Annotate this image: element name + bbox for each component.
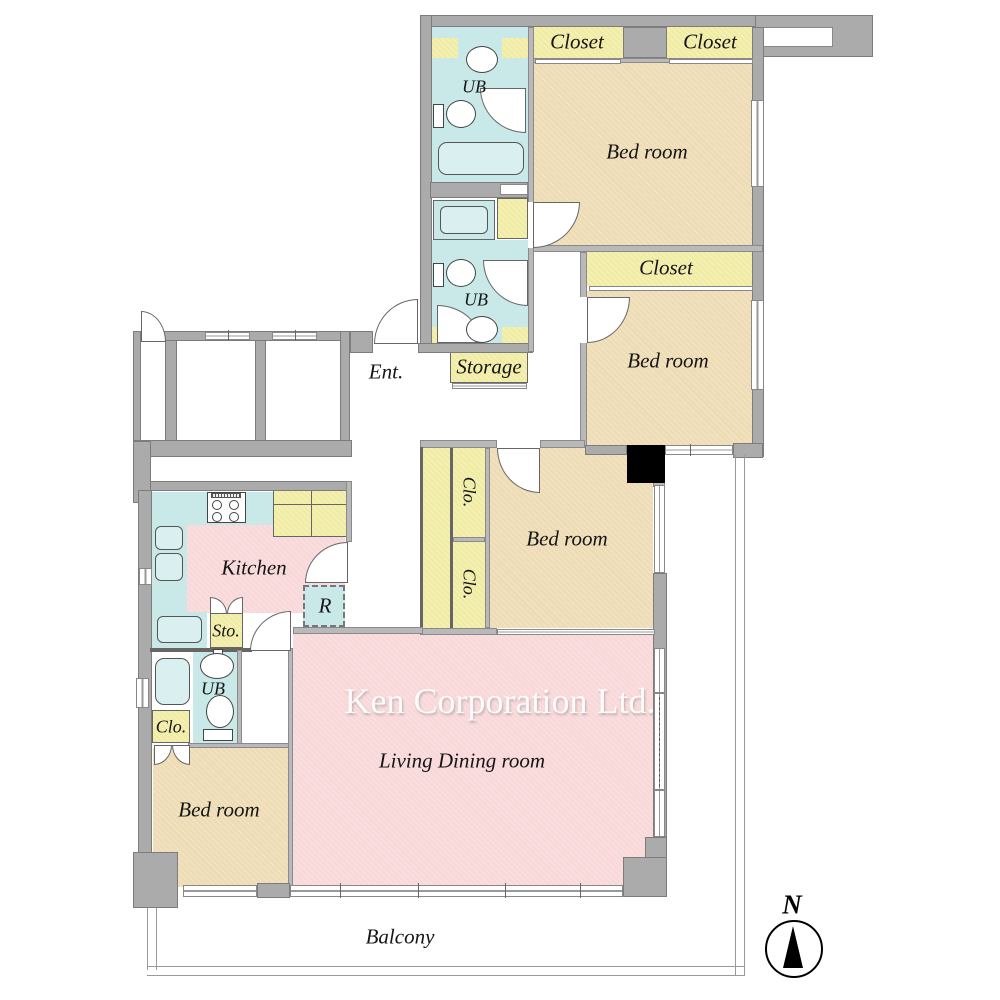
door-gap xyxy=(580,297,587,343)
sliding-door xyxy=(589,286,753,291)
wall xyxy=(420,440,497,448)
wall xyxy=(485,448,490,628)
wall xyxy=(340,331,350,456)
window xyxy=(751,300,764,390)
burner-icon xyxy=(212,512,222,522)
label-entrance: Ent. xyxy=(369,360,403,385)
door-arc-entrance xyxy=(141,311,166,342)
label-clo-upper: Clo. xyxy=(459,477,480,508)
corridor-shelf-strip xyxy=(423,448,450,628)
label-storage-small: Sto. xyxy=(212,621,240,642)
window-tick xyxy=(580,883,581,898)
label-bedroom-top: Bed room xyxy=(606,140,687,165)
wall xyxy=(528,27,534,352)
wall xyxy=(255,340,266,446)
door-arc-hall xyxy=(374,299,418,344)
cabinet-divider-h xyxy=(274,504,347,505)
sliding-door xyxy=(535,59,621,64)
sliding-door xyxy=(497,629,655,635)
ub-top-shelf-left xyxy=(432,38,458,58)
label-ub-bottom: UB xyxy=(201,679,225,700)
pillar xyxy=(627,445,665,483)
wall xyxy=(418,343,533,353)
wall xyxy=(165,340,177,441)
stove-grill xyxy=(211,493,241,498)
window-tick xyxy=(340,883,341,898)
burner-icon xyxy=(229,500,239,510)
wall xyxy=(257,883,290,898)
counter-unit xyxy=(157,616,202,643)
wall xyxy=(346,481,352,542)
toilet-tank-icon xyxy=(433,104,444,128)
compass-arrow-icon xyxy=(783,926,803,968)
floor-plan: Ken Corporation Ltd. N Closet Closet Bed… xyxy=(0,0,1000,1000)
wall xyxy=(533,245,763,252)
counter-sink xyxy=(155,553,183,581)
wall xyxy=(237,650,242,745)
burner-icon xyxy=(229,512,239,522)
window-tick xyxy=(295,330,296,341)
door-arc-kitchen-hall xyxy=(250,611,291,651)
wall-niche xyxy=(763,27,833,47)
label-closet-top-left: Closet xyxy=(550,30,604,55)
wall xyxy=(580,252,587,447)
window-tick xyxy=(690,444,691,456)
wall xyxy=(150,481,352,491)
label-bedroom-bottom: Bed room xyxy=(178,798,259,823)
wall xyxy=(133,440,352,457)
label-ub-mid: UB xyxy=(464,290,488,311)
bathtub xyxy=(438,142,524,175)
sink-icon xyxy=(200,653,234,679)
balcony-rail-left xyxy=(147,908,157,970)
toilet-icon xyxy=(446,100,476,128)
window-tick xyxy=(228,330,229,341)
label-balcony: Balcony xyxy=(366,925,435,950)
wall xyxy=(623,857,667,897)
label-closet-top-right: Closet xyxy=(683,30,737,55)
wall xyxy=(288,648,293,888)
compass-north-label: N xyxy=(782,890,802,921)
label-ub-top: UB xyxy=(462,77,486,98)
wall-gap xyxy=(500,184,528,195)
window xyxy=(654,790,665,837)
toilet-icon xyxy=(206,695,234,728)
wall xyxy=(188,743,293,748)
sink-icon xyxy=(466,46,498,73)
wall xyxy=(420,447,423,633)
wall xyxy=(585,445,627,455)
wall xyxy=(752,27,764,457)
label-clo-left: Clo. xyxy=(156,717,187,738)
label-refrigerator: R xyxy=(319,594,332,619)
window xyxy=(183,885,257,897)
label-bedroom-center: Bed room xyxy=(526,527,607,552)
toilet-tank-icon xyxy=(433,263,444,287)
shelf-mid xyxy=(497,198,528,239)
toilet-icon xyxy=(446,259,476,287)
balcony-rail-right xyxy=(735,455,745,976)
window xyxy=(139,568,152,585)
label-closet-mid: Closet xyxy=(639,256,693,281)
window xyxy=(665,445,733,455)
window-tick xyxy=(418,883,419,898)
washing-machine xyxy=(440,206,488,234)
label-clo-lower: Clo. xyxy=(459,569,480,600)
wall xyxy=(540,440,585,448)
toilet-tank-icon xyxy=(203,729,233,741)
window xyxy=(136,678,149,708)
window-tick xyxy=(505,883,506,898)
label-bedroom-right: Bed room xyxy=(627,349,708,374)
sliding-door xyxy=(452,383,527,389)
balcony-rail-bottom xyxy=(147,966,745,976)
wall xyxy=(453,537,485,542)
bathtub xyxy=(155,658,190,705)
wall xyxy=(138,490,152,858)
label-living-dining: Living Dining room xyxy=(379,749,545,774)
watermark: Ken Corporation Ltd. xyxy=(330,680,670,722)
label-kitchen: Kitchen xyxy=(221,556,286,581)
wall xyxy=(623,27,667,58)
ub-top-shelf-right xyxy=(502,38,528,58)
wall xyxy=(293,627,423,634)
window xyxy=(751,100,764,187)
burner-icon xyxy=(212,500,222,510)
window xyxy=(654,485,665,573)
label-storage: Storage xyxy=(456,355,521,380)
sliding-door xyxy=(669,59,753,64)
cabinet-divider-v xyxy=(311,491,312,536)
corner-pillar xyxy=(133,852,178,908)
wall xyxy=(420,628,497,635)
wall xyxy=(133,331,141,448)
counter-sink xyxy=(155,526,183,550)
sink-icon xyxy=(466,316,498,343)
wall xyxy=(350,331,373,353)
